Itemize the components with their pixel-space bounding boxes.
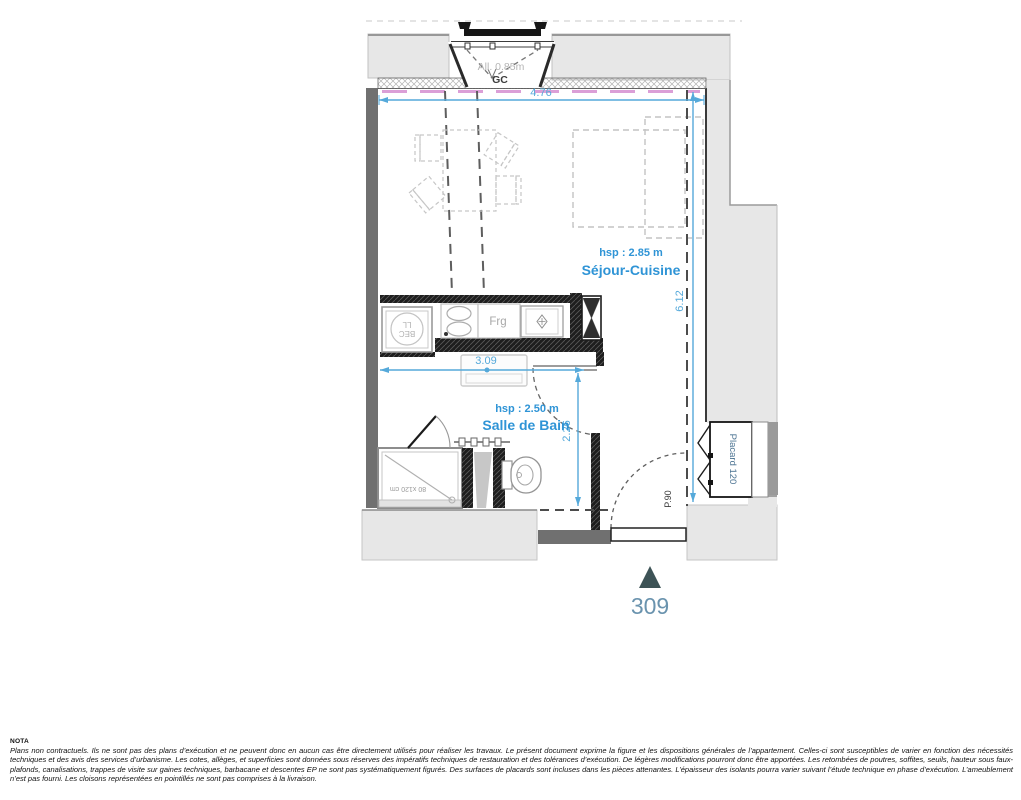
entry-door-swing xyxy=(611,453,686,528)
svg-text:4.76: 4.76 xyxy=(530,87,551,99)
dim-width-kitchen: 3.09 xyxy=(380,355,584,373)
svg-text:3.09: 3.09 xyxy=(475,355,496,367)
gc-label: GC xyxy=(492,74,508,86)
kitchen: BEC LL Frg xyxy=(380,293,603,386)
shower-size-label: 80 x120 cm xyxy=(390,485,426,492)
kitchen-sink xyxy=(521,306,563,337)
placard-label: Placard 120 xyxy=(727,434,738,485)
bath-name-label: Salle de Bain xyxy=(482,417,569,433)
floor-plan: All. 0.85m GC xyxy=(0,0,1021,735)
nota-block: NOTA Plans non contractuels. Ils ne sont… xyxy=(10,738,1013,784)
placard: Placard 120 xyxy=(698,422,778,497)
north-triangle-icon xyxy=(639,566,661,588)
entry-door-label: P.90 xyxy=(663,490,673,507)
dining-set xyxy=(409,130,521,213)
fridge: Frg xyxy=(478,304,520,338)
window-sill-label: All. 0.85m xyxy=(478,61,525,73)
kitchen-bath-wall xyxy=(435,338,603,352)
towel-radiator xyxy=(454,438,510,446)
hob xyxy=(441,304,478,338)
chair xyxy=(415,135,441,161)
dim-width-top: 4.76 xyxy=(379,87,704,105)
chair xyxy=(496,176,521,204)
nota-body: Plans non contractuels. Ils ne sont pas … xyxy=(10,746,1013,784)
entry-wall xyxy=(538,530,611,544)
fridge-label: Frg xyxy=(489,316,506,328)
chair xyxy=(409,176,446,213)
unit-number: 309 xyxy=(631,593,669,619)
shower: 80 x120 cm xyxy=(378,448,462,508)
washer-label-line2: LL xyxy=(402,320,411,329)
washing-machine: BEC LL xyxy=(382,307,432,352)
duct-wedge xyxy=(474,452,492,508)
shower-door xyxy=(408,416,450,448)
ceiling-projection-lines xyxy=(445,91,484,294)
left-wall xyxy=(366,88,378,508)
entry-door xyxy=(611,528,686,541)
sejour-name-label: Séjour-Cuisine xyxy=(582,262,681,278)
dining-table xyxy=(443,130,496,211)
bed-outline xyxy=(573,117,703,238)
sejour-hsp-label: hsp : 2.85 m xyxy=(599,247,663,259)
unit-marker: 309 xyxy=(631,566,669,619)
bath-entry-wall xyxy=(591,433,600,530)
bath-hsp-label: hsp : 2.50 m xyxy=(495,403,559,415)
nota-title: NOTA xyxy=(10,738,1013,745)
washer-label-line1: BEC xyxy=(399,329,416,338)
chair xyxy=(484,133,519,168)
duct-shaft xyxy=(582,296,601,340)
toilet xyxy=(502,457,541,493)
window-frame xyxy=(464,29,541,36)
dim-height-bath: 2.26 xyxy=(561,373,581,506)
floor-plan-page: All. 0.85m GC xyxy=(0,0,1021,800)
svg-text:6.12: 6.12 xyxy=(674,290,686,311)
